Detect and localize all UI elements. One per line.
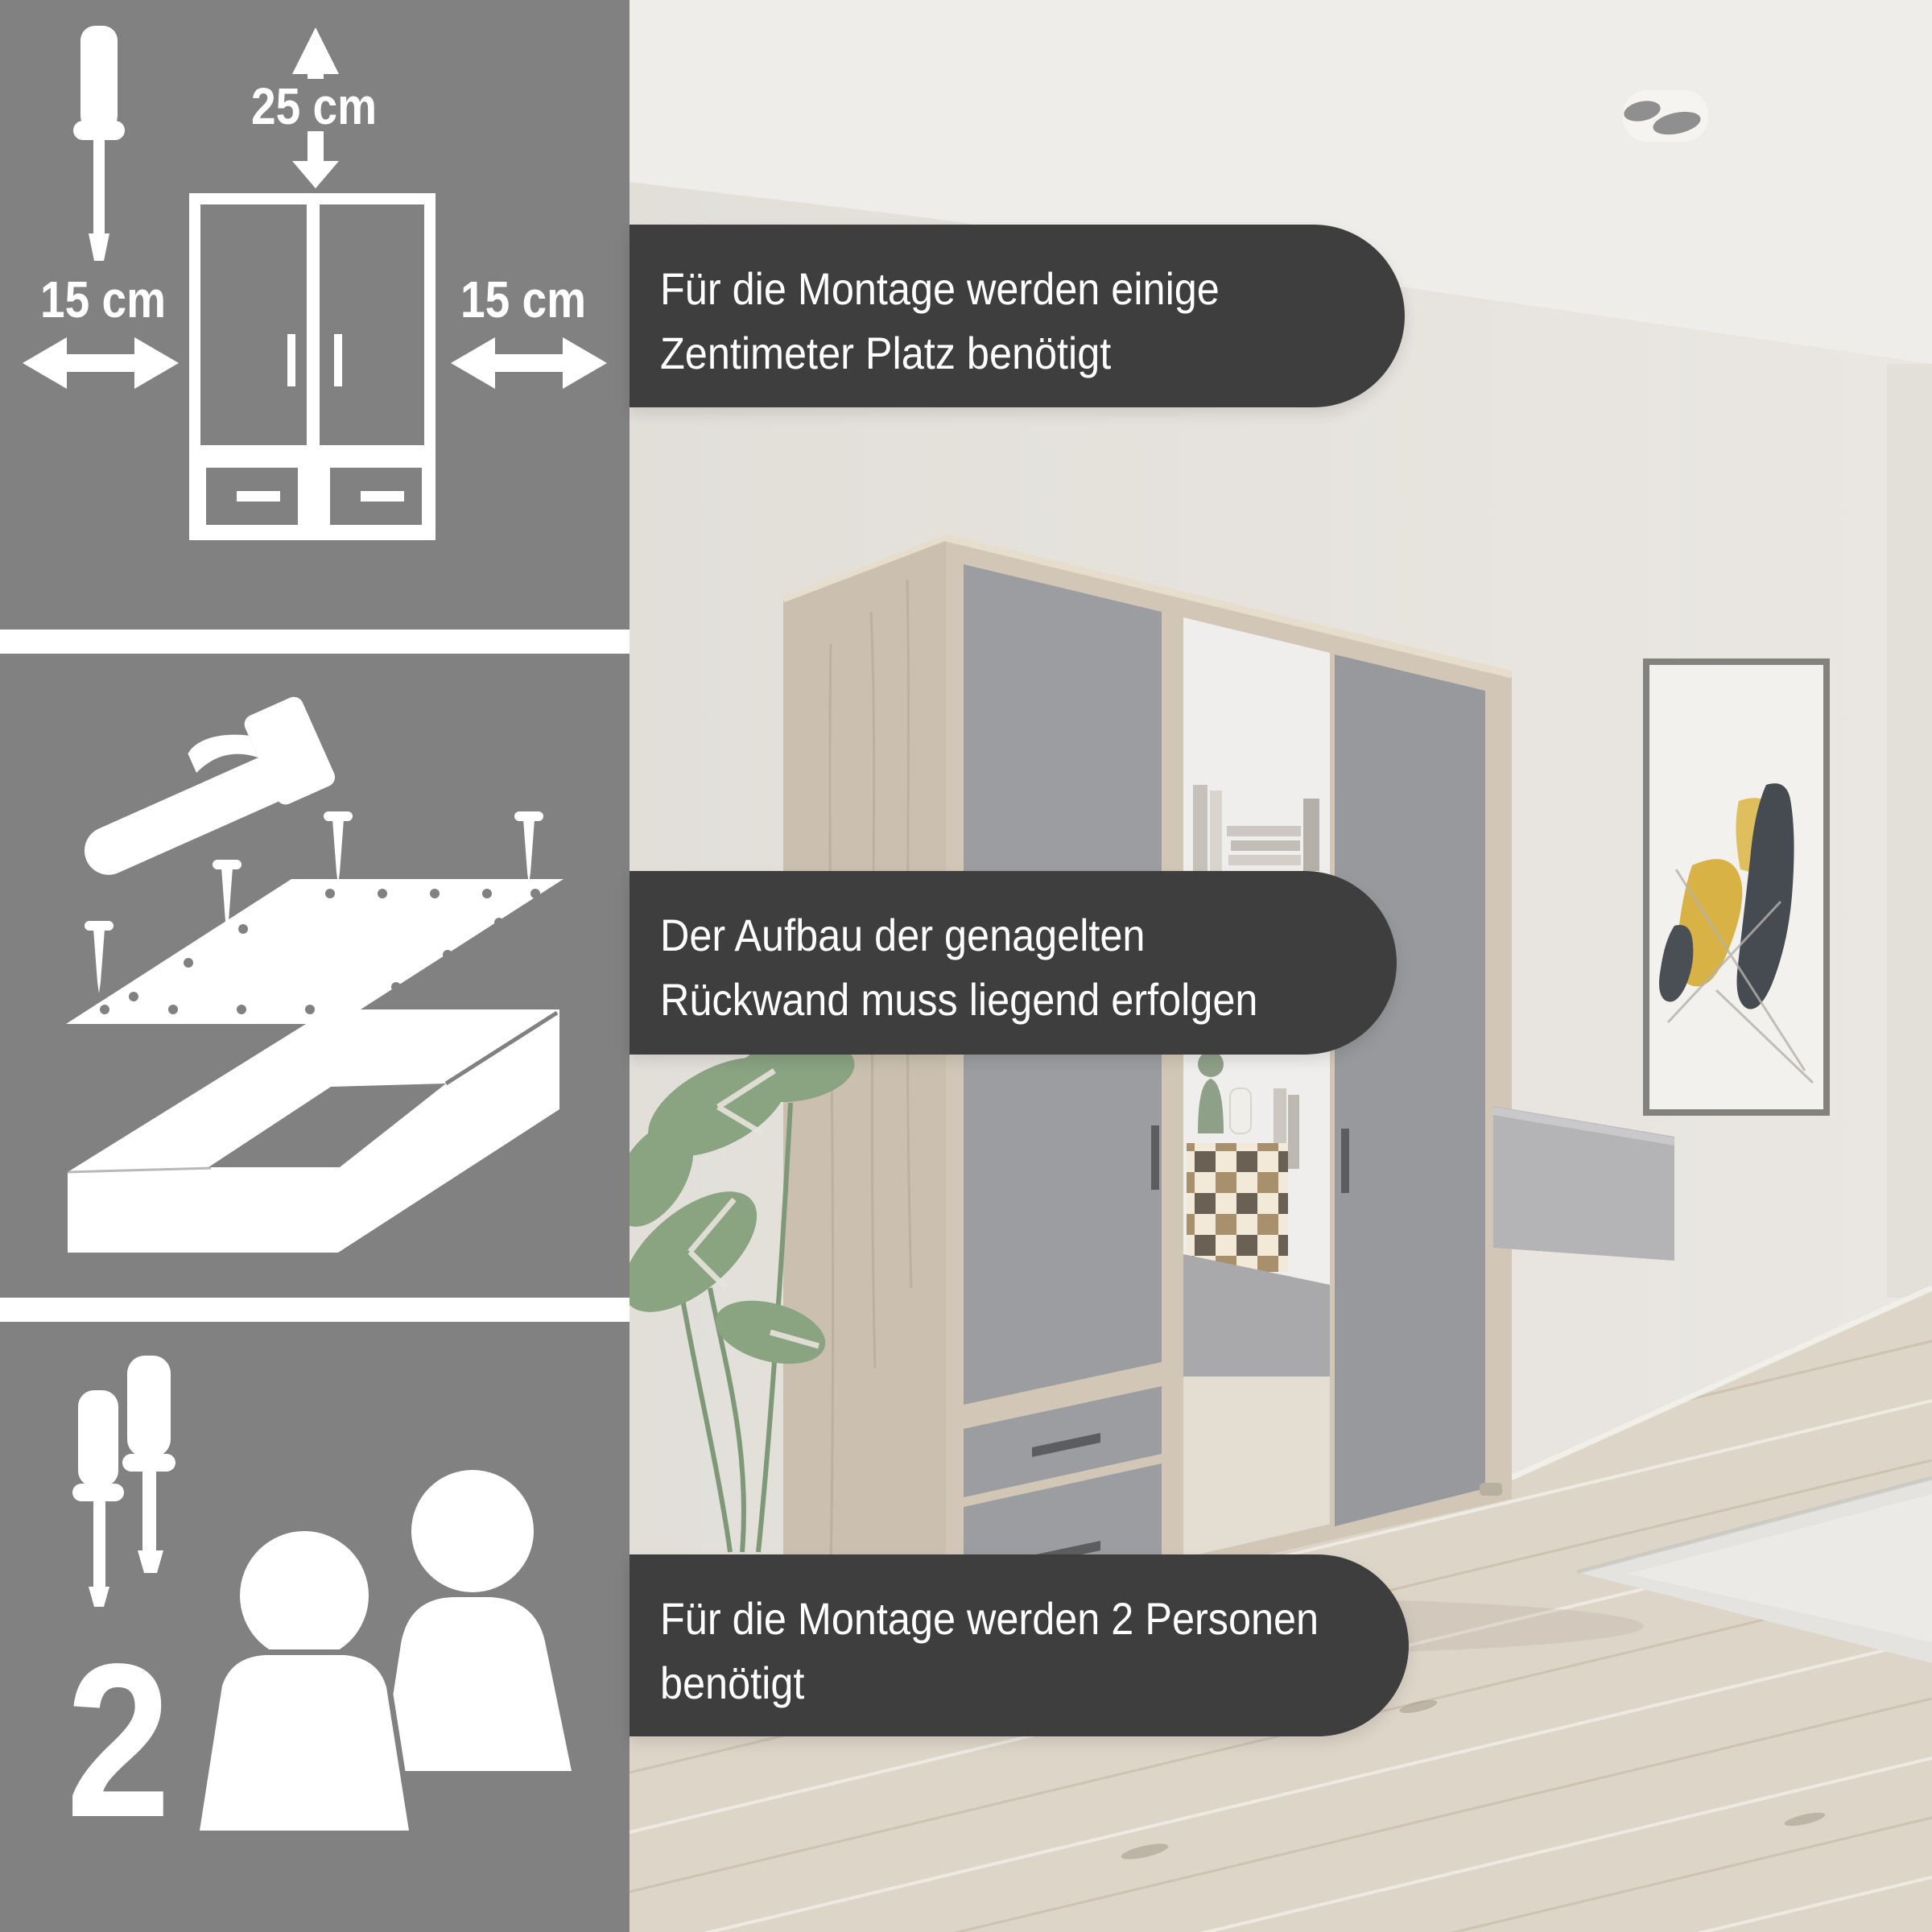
wardrobe-side-panel [783, 538, 946, 1686]
clearance-right-label: 15 cm [460, 274, 586, 325]
clearance-top-label: 25 cm [251, 80, 377, 132]
callout-line: Rückwand muss liegend erfolgen [660, 968, 1323, 1032]
clearance-left-label: 15 cm [40, 274, 166, 325]
section-divider [0, 630, 630, 654]
callout-line: Für die Montage werden einige [660, 257, 1331, 321]
callout-two-persons: Für die Montage werden 2 Personen benöti… [630, 1554, 1409, 1736]
callout-line: benötigt [660, 1651, 1334, 1715]
wardrobe-leg [1480, 1483, 1502, 1496]
callout-line: Für die Montage werden 2 Personen [660, 1587, 1334, 1651]
callout-clearance: Für die Montage werden einige Zentimeter… [630, 225, 1405, 407]
screwdrivers-icon [72, 1356, 175, 1607]
hammer-icon [60, 694, 338, 889]
left-right-arrow-icon [451, 337, 607, 389]
ceiling-light-icon [1622, 90, 1708, 142]
wall-corner-shade [1887, 364, 1932, 1298]
wall-art [1646, 662, 1827, 1113]
callout-line: Zentimeter Platz benötigt [660, 321, 1331, 386]
callout-line: Der Aufbau der genagelten [660, 903, 1323, 968]
down-arrow-icon [292, 131, 339, 188]
section-divider [0, 1298, 630, 1322]
up-arrow-icon [292, 27, 339, 79]
sidebar: 25 cm 15 cm 15 cm 2 [0, 0, 630, 1932]
person-front-icon [200, 1531, 409, 1831]
person-back-icon [382, 1470, 572, 1771]
back-panel-icon [66, 879, 563, 1024]
wardrobe-door-left [964, 564, 1162, 1608]
door-handle [1151, 1125, 1159, 1190]
screwdriver-icon [73, 26, 125, 261]
door-handle [1341, 1129, 1349, 1193]
two-persons-icon [200, 1470, 572, 1831]
wardrobe-door-right [1335, 654, 1485, 1526]
callout-back-panel: Der Aufbau der genagelten Rückwand muss … [630, 871, 1397, 1055]
wardrobe [783, 538, 1512, 1686]
persons-count-label: 2 [66, 1631, 171, 1850]
left-right-arrow-icon [23, 337, 179, 389]
box-frame-icon [68, 1009, 559, 1253]
room-photo: Für die Montage werden einige Zentimeter… [630, 0, 1932, 1932]
assembly-infographic: 25 cm 15 cm 15 cm 2 [0, 0, 1932, 1932]
wardrobe-outline-icon [195, 199, 430, 535]
